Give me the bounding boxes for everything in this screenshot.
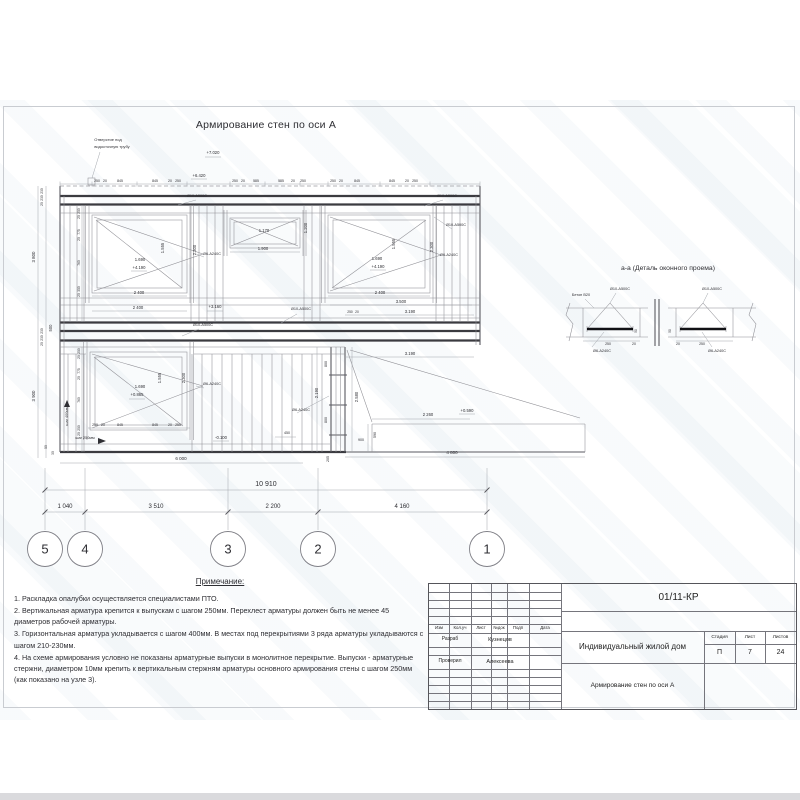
dim-label: 230 bbox=[40, 335, 44, 341]
dim-label: 845 bbox=[117, 179, 123, 183]
drawing-line bbox=[703, 293, 708, 303]
tb-col-header: Подп bbox=[507, 624, 529, 633]
dim-label: 250 bbox=[605, 342, 611, 346]
window-opening bbox=[92, 215, 187, 293]
drawing-line bbox=[94, 254, 203, 291]
dim-label: 845 bbox=[389, 179, 395, 183]
title-block: ИзмКол.учЛист№докПодпДатаРазрабКузнецовП… bbox=[428, 583, 797, 710]
dim-label: 775 bbox=[77, 229, 81, 235]
notes-items: 1. Раскладка опалубки осуществляется спе… bbox=[14, 593, 426, 685]
dim-label: +4.190 bbox=[372, 264, 386, 269]
dim-label: Отверстие под bbox=[94, 137, 122, 142]
dim-label: 230 bbox=[40, 188, 44, 194]
dim-label: 20 bbox=[77, 376, 81, 380]
dim-label: 2 200 bbox=[265, 504, 281, 510]
dim-label: 20 bbox=[339, 179, 343, 183]
dim-label: 2.300 bbox=[192, 244, 197, 255]
dim-label: 2.300 bbox=[181, 372, 186, 383]
dim-label: Ø6-A240C bbox=[292, 408, 310, 412]
dim-label: 250 bbox=[175, 423, 181, 427]
dim-label: 250 bbox=[699, 342, 705, 346]
dim-label: Ø10-A500C bbox=[291, 307, 311, 311]
tb-sheet-title: Армирование стен по оси А bbox=[561, 663, 704, 709]
direction-arrow bbox=[64, 400, 70, 407]
title-block-line bbox=[529, 584, 530, 709]
dim-label: Бетон B20 bbox=[572, 293, 590, 297]
dim-label: 900 bbox=[358, 438, 364, 442]
drawing-line bbox=[94, 217, 203, 254]
notes-block: Примечание: 1. Раскладка опалубки осущес… bbox=[14, 577, 426, 686]
dim-label: 800 bbox=[324, 417, 328, 423]
drawing-line bbox=[92, 386, 203, 428]
dim-label: 1.170 bbox=[259, 228, 270, 233]
dim-label: 50 bbox=[44, 445, 48, 449]
dim-label: 250 bbox=[77, 425, 81, 431]
dim-label: 205 bbox=[326, 456, 330, 462]
tb-stage-value: 24 bbox=[765, 644, 796, 663]
window-opening bbox=[90, 352, 187, 430]
dim-label: 1.200 bbox=[303, 222, 308, 233]
break-symbol bbox=[749, 303, 756, 341]
dim-label: 3 510 bbox=[148, 504, 164, 510]
tb-name: Кузнецов bbox=[471, 633, 529, 647]
tb-role: Проверил bbox=[429, 655, 471, 669]
dim-label: водосточную трубу bbox=[94, 144, 129, 149]
dim-label: 250 bbox=[412, 179, 418, 183]
detail-section-title: а-а (Деталь оконного проема) bbox=[568, 265, 768, 272]
tb-name: Алексеева bbox=[471, 655, 529, 669]
note-item: 4. На схеме армирования условно не показ… bbox=[14, 652, 426, 685]
dim-label: 20 bbox=[101, 423, 105, 427]
drawing-line bbox=[347, 350, 372, 422]
notes-title: Примечание: bbox=[14, 577, 426, 586]
dim-label: 845 bbox=[117, 423, 123, 427]
dim-label: 450 bbox=[284, 431, 290, 435]
dim-label: 800 bbox=[324, 361, 328, 367]
dim-label: 20 bbox=[168, 179, 172, 183]
tb-doc-number: 01/11-КР bbox=[561, 584, 796, 611]
dim-label: Ø6-A240C bbox=[440, 253, 458, 257]
dim-label: 250 bbox=[300, 179, 306, 183]
dim-label: 4 160 bbox=[394, 504, 410, 510]
drawing-line bbox=[610, 293, 616, 303]
dim-label: 2 400 bbox=[133, 305, 144, 310]
tb-project-name: Индивидуальный жилой дом bbox=[561, 631, 704, 663]
dim-label: 20 bbox=[77, 237, 81, 241]
dim-label: +0.590 bbox=[461, 408, 475, 413]
dim-label: 1.555 bbox=[157, 372, 162, 383]
dim-label: Ø10-A500C bbox=[610, 287, 630, 291]
tb-stage-header: Стадия bbox=[704, 631, 735, 644]
drawing-line bbox=[92, 354, 203, 386]
dim-label: 500 bbox=[48, 324, 53, 332]
axis-number: 2 bbox=[314, 542, 321, 557]
dim-label: Ø10-A500C bbox=[446, 223, 466, 227]
dim-label: 590 bbox=[373, 432, 377, 438]
tb-stage-header: Листов bbox=[765, 631, 796, 644]
axis-number: 3 bbox=[224, 542, 231, 557]
dim-label: 20 bbox=[103, 179, 107, 183]
dim-label: 2 400 bbox=[375, 290, 386, 295]
dim-label: 845 bbox=[152, 423, 158, 427]
dim-label: 250 bbox=[77, 208, 81, 214]
dim-label: 2.190 bbox=[314, 387, 319, 398]
dim-label: 50 bbox=[634, 329, 638, 333]
break-symbol bbox=[566, 303, 573, 341]
dim-label: 250 bbox=[94, 179, 100, 183]
dim-label: 3 800 bbox=[31, 251, 36, 263]
dim-label: Ø6-A240C bbox=[203, 252, 221, 256]
dim-label: 1.900 bbox=[258, 246, 269, 251]
note-item: 1. Раскладка опалубки осуществляется спе… bbox=[14, 593, 426, 604]
dim-label: 20 bbox=[77, 293, 81, 297]
dim-label: +7.020 bbox=[207, 150, 221, 155]
dim-label: 2.580 bbox=[354, 391, 359, 402]
tb-col-header: Изм bbox=[429, 624, 449, 633]
axis-number: 4 bbox=[81, 542, 88, 557]
drawing-line bbox=[592, 332, 604, 347]
drawing-line bbox=[610, 303, 633, 329]
tb-stage-header: Лист bbox=[735, 631, 765, 644]
note-item: 2. Вертикальная арматура крепится к выпу… bbox=[14, 605, 426, 627]
dim-label: 1.690 bbox=[135, 257, 146, 262]
dim-label: 1.555 bbox=[391, 238, 396, 249]
dim-label: 30 bbox=[51, 451, 55, 455]
dim-label: 20 bbox=[77, 215, 81, 219]
dim-label: 250 bbox=[330, 179, 336, 183]
dim-label: 845 bbox=[354, 179, 360, 183]
dim-label: 250 bbox=[175, 179, 181, 183]
dim-label: 1.690 bbox=[135, 384, 146, 389]
dim-label: 350 bbox=[77, 286, 81, 292]
bottom-edge bbox=[0, 793, 800, 800]
dim-label: 760 bbox=[77, 397, 81, 403]
dim-label: 20 bbox=[241, 179, 245, 183]
tb-role: Разраб bbox=[429, 633, 471, 647]
direction-arrow bbox=[98, 438, 106, 444]
dim-label: 775 bbox=[77, 368, 81, 374]
overall-dimension: 10 910 bbox=[255, 481, 277, 488]
dim-label: 250 bbox=[77, 348, 81, 354]
dim-label: 20 bbox=[40, 342, 44, 346]
dim-label: 4 800 bbox=[446, 450, 458, 455]
blueprint-page: 54321Отверстие подводосточную трубу+7.02… bbox=[0, 0, 800, 800]
title-block-line bbox=[561, 611, 796, 612]
dim-label: шаг 400мм bbox=[65, 406, 69, 426]
drawing-line bbox=[585, 299, 594, 308]
axis-number: 1 bbox=[483, 542, 490, 557]
drawing-line bbox=[96, 220, 182, 288]
dim-label: Ø6-A240C bbox=[593, 349, 611, 353]
dim-label: 20 bbox=[77, 355, 81, 359]
dim-label: 3.190 bbox=[405, 351, 416, 356]
window-opening bbox=[234, 222, 296, 244]
dim-label: 6 000 bbox=[175, 456, 187, 461]
dim-label: Ø10-A500C bbox=[702, 287, 722, 291]
dim-label: +3.160 bbox=[209, 304, 223, 309]
tb-col-header: №док bbox=[491, 624, 507, 633]
dim-label: 20 bbox=[40, 202, 44, 206]
dim-label: 50 bbox=[668, 329, 672, 333]
dim-label: Ø6-A240C bbox=[708, 349, 726, 353]
dim-label: 20 bbox=[291, 179, 295, 183]
dim-label: 20 bbox=[676, 342, 680, 346]
dim-label: 250 bbox=[347, 310, 353, 314]
dim-label: 250 bbox=[92, 423, 98, 427]
drawing-title: Армирование стен по оси А bbox=[160, 119, 372, 131]
dim-label: 1 040 bbox=[57, 504, 73, 510]
dim-label: 845 bbox=[152, 179, 158, 183]
dim-label: 3.190 bbox=[405, 309, 416, 314]
dim-label: 3.500 bbox=[396, 299, 407, 304]
dim-label: Ø10-A500C bbox=[437, 194, 457, 198]
dim-label: 3 900 bbox=[31, 390, 36, 402]
dim-label: 1.690 bbox=[372, 256, 383, 261]
drawing-line bbox=[680, 303, 703, 329]
axis-number: 5 bbox=[41, 542, 48, 557]
dim-label: 585 bbox=[278, 179, 284, 183]
dim-label: -0.100 bbox=[215, 435, 228, 440]
dim-label: шаг 250мм bbox=[75, 436, 95, 440]
dim-label: Ø10-A500C bbox=[193, 323, 213, 327]
dim-label: +4.190 bbox=[133, 265, 147, 270]
dim-label: 20 bbox=[632, 342, 636, 346]
dim-label: +6.420 bbox=[193, 173, 207, 178]
tb-col-header: Дата bbox=[529, 624, 561, 633]
dim-label: 230 bbox=[40, 195, 44, 201]
drawing-line bbox=[587, 303, 610, 329]
dim-label: 760 bbox=[77, 260, 81, 266]
drawing-line bbox=[92, 152, 100, 178]
dim-label: 1.555 bbox=[160, 242, 165, 253]
tb-col-header: Лист bbox=[471, 624, 491, 633]
dim-label: 250 bbox=[232, 179, 238, 183]
dim-label: 2 400 bbox=[134, 290, 145, 295]
dim-label: 2.300 bbox=[429, 241, 434, 252]
tb-stage-value: П bbox=[704, 644, 735, 663]
dim-label: 2 260 bbox=[423, 412, 434, 417]
tb-col-header: Кол.уч bbox=[449, 624, 471, 633]
dim-label: 585 bbox=[253, 179, 259, 183]
dim-label: 230 bbox=[40, 328, 44, 334]
dim-label: Ø10-A500C bbox=[187, 194, 207, 198]
dim-label: +0.865 bbox=[131, 392, 145, 397]
drawing-line bbox=[703, 303, 726, 329]
drawing-line bbox=[330, 255, 441, 291]
dim-label: 20 bbox=[355, 310, 359, 314]
dim-label: 20 bbox=[168, 423, 172, 427]
note-item: 3. Горизонтальная арматура укладывается … bbox=[14, 628, 426, 650]
drawing-line bbox=[332, 220, 426, 288]
tb-stage-value: 7 bbox=[735, 644, 765, 663]
dim-label: Ø6-A240C bbox=[203, 382, 221, 386]
dim-label: 20 bbox=[405, 179, 409, 183]
